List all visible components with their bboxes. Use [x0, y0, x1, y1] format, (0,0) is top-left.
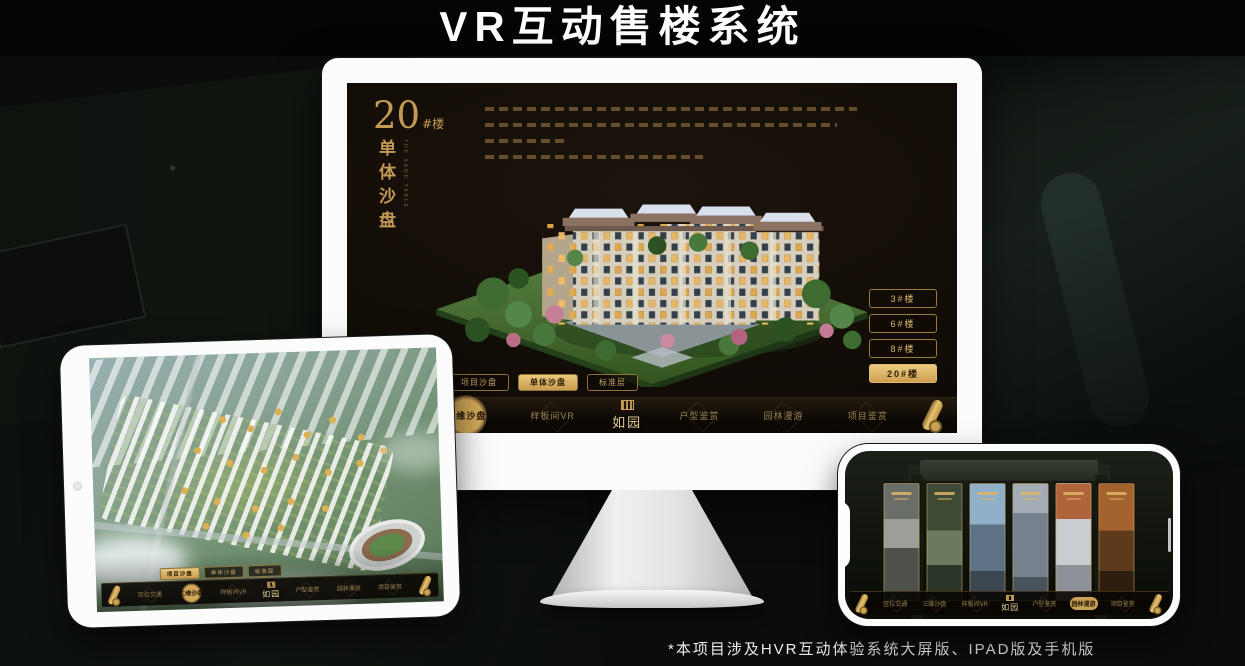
phone-notch: [838, 502, 850, 568]
gallery-card[interactable]: [970, 483, 1006, 601]
tablet-device: 项目沙盘 单体沙盘 标准层 区位交通 三维沙盘 样板间VR 如园 户型鉴赏 园林…: [60, 334, 461, 628]
floor-button[interactable]: 3#楼: [869, 289, 937, 308]
monitor-stand-base: [540, 590, 764, 608]
scroll-icon[interactable]: [420, 574, 431, 597]
subtab-group: 项目沙盘 单体沙盘 标准层: [449, 374, 638, 391]
nav-item-unit-plans[interactable]: 户型鉴赏: [1030, 597, 1058, 610]
gallery-card[interactable]: [1099, 483, 1135, 601]
heading-number: 20: [373, 94, 420, 137]
nav-item-garden-roam[interactable]: 园林漫游: [757, 404, 811, 427]
monitor-stand: [552, 490, 752, 596]
phone-device: 区位交通 三维沙盘 样板间VR 如园 户型鉴赏 园林漫游 项目鉴赏: [838, 444, 1180, 626]
ruyuan-seal-icon: [1006, 595, 1014, 601]
logo-text: 如园: [262, 588, 280, 600]
page-title: VR互动售楼系统: [0, 0, 1245, 56]
building-3d-model[interactable]: [421, 139, 883, 387]
floor-button-group: 3#楼 6#楼 8#楼 20#楼: [869, 289, 937, 383]
nav-item-3d-sandtable[interactable]: 三维沙盘: [177, 586, 205, 600]
ruyuan-seal-icon: [267, 581, 275, 587]
nav-item-location[interactable]: 区位交通: [881, 597, 909, 610]
gallery-card[interactable]: [927, 483, 963, 601]
nav-item-location[interactable]: 区位交通: [136, 587, 164, 601]
tablet-screen: 项目沙盘 单体沙盘 标准层 区位交通 三维沙盘 样板间VR 如园 户型鉴赏 园林…: [89, 347, 444, 612]
nav-item-unit-plans[interactable]: 户型鉴赏: [672, 404, 726, 427]
subtab-single-sandtable[interactable]: 单体沙盘: [204, 566, 244, 579]
floor-button[interactable]: 8#楼: [869, 339, 937, 358]
courtyard-gate: [920, 460, 1097, 480]
nav-item-unit-plans[interactable]: 户型鉴赏: [293, 582, 321, 596]
nav-item-showroom-vr[interactable]: 样板间VR: [523, 404, 582, 427]
ruyuan-seal-icon: [621, 400, 634, 410]
gallery-card[interactable]: [1013, 483, 1049, 601]
heading-title: 单体沙盘: [373, 139, 398, 277]
scroll-icon[interactable]: [109, 584, 120, 607]
background-river: [1034, 167, 1155, 434]
background-plaque: [0, 223, 146, 348]
nav-item-showroom-vr[interactable]: 样板间VR: [218, 584, 249, 598]
subtab-standard-floor[interactable]: 标准层: [587, 374, 638, 391]
tablet-camera-icon: [73, 482, 82, 491]
logo-text: 如园: [1001, 602, 1019, 613]
gallery-card-row: [884, 483, 1135, 601]
heading-unit: #楼: [422, 117, 444, 131]
subtab-single-sandtable[interactable]: 单体沙盘: [518, 374, 578, 391]
floor-button[interactable]: 6#楼: [869, 314, 937, 333]
subtab-project-sandtable[interactable]: 项目沙盘: [449, 374, 509, 391]
floor-button-active[interactable]: 20#楼: [869, 364, 937, 383]
nav-item-showroom-vr[interactable]: 样板间VR: [960, 597, 990, 610]
ruyuan-logo[interactable]: 如园: [262, 581, 281, 600]
gallery-card[interactable]: [884, 483, 920, 601]
gallery-card[interactable]: [1056, 483, 1092, 601]
subtab-project-sandtable[interactable]: 项目沙盘: [160, 567, 200, 580]
logo-text: 如园: [612, 412, 642, 431]
phone-screen: 区位交通 三维沙盘 样板间VR 如园 户型鉴赏 园林漫游 项目鉴赏: [845, 451, 1173, 619]
nav-item-project-gallery[interactable]: 项目鉴赏: [376, 580, 404, 594]
footnote: *本项目涉及HVR互动体验系统大屏版、IPAD版及手机版: [668, 638, 1245, 659]
phone-home-indicator: [1168, 518, 1171, 552]
scroll-icon[interactable]: [925, 398, 941, 434]
scroll-icon[interactable]: [1151, 592, 1161, 614]
building-number: 20#楼: [373, 97, 444, 134]
main-navbar: 区位交通 三维沙盘 样板间VR 如园 户型鉴赏 园林漫游 项目鉴赏: [849, 591, 1169, 615]
subtab-standard-floor[interactable]: 标准层: [248, 564, 282, 577]
nav-item-garden-roam[interactable]: 园林漫游: [334, 581, 362, 595]
nav-item-garden-roam[interactable]: 园林漫游: [1070, 597, 1098, 610]
heading-title-en: THE SAND TABLE: [402, 139, 408, 277]
ruyuan-logo[interactable]: 如园: [612, 400, 642, 431]
scroll-icon[interactable]: [857, 592, 867, 614]
background-star-icon: ✦: [168, 162, 177, 175]
ruyuan-logo[interactable]: 如园: [1001, 595, 1019, 613]
poster-canvas: ✦ VR互动售楼系统 20#楼 单体沙盘 THE SAND TABLE: [0, 0, 1245, 666]
nav-item-3d-sandtable[interactable]: 三维沙盘: [920, 597, 948, 610]
nav-item-project-gallery[interactable]: 项目鉴赏: [1109, 597, 1137, 610]
nav-item-project-gallery[interactable]: 项目鉴赏: [841, 404, 895, 427]
